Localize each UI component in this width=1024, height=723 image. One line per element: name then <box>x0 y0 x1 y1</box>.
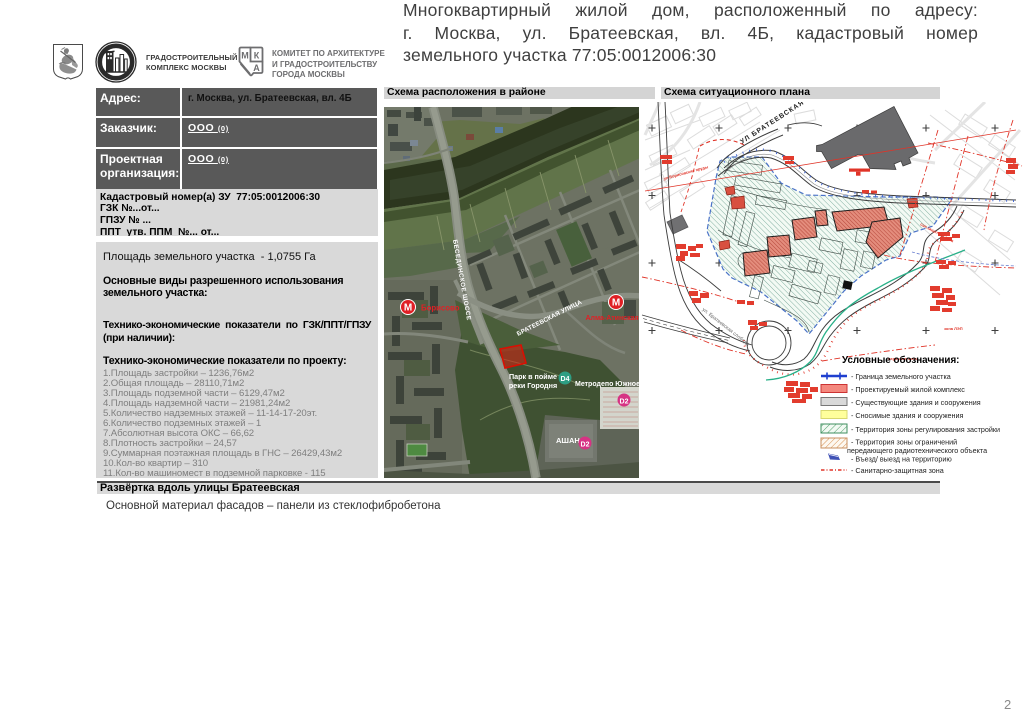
svg-text:Парк в пойме: Парк в пойме <box>509 372 557 381</box>
svg-text:М: М <box>404 303 412 314</box>
svg-text:- Сносимые здания и сооружения: - Сносимые здания и сооружения <box>851 411 964 420</box>
svg-text:Борисово: Борисово <box>421 304 460 313</box>
svg-text:К: К <box>254 51 260 61</box>
svg-text:зона ЛЭП: зона ЛЭП <box>944 326 963 331</box>
svg-text:Метродепо Южное: Метродепо Южное <box>575 381 639 388</box>
svg-text:А: А <box>253 63 260 73</box>
svg-text:D2: D2 <box>620 399 629 406</box>
svg-text:- Территория зоны регулировани: - Территория зоны регулирования застройк… <box>851 425 1000 434</box>
svg-text:- Санитарно-защитная зона: - Санитарно-защитная зона <box>851 466 944 475</box>
svg-text:АШАН: АШАН <box>556 436 580 445</box>
svg-text:- Проектируемый жилой комплекс: - Проектируемый жилой комплекс <box>851 385 965 394</box>
svg-text:D2: D2 <box>581 442 590 449</box>
svg-text:- Существующие здания и сооруж: - Существующие здания и сооружения <box>851 398 981 407</box>
svg-text:реки Городня: реки Городня <box>509 381 557 390</box>
svg-text:- Въезд/ выезд на территорию: - Въезд/ выезд на территорию <box>851 455 952 464</box>
svg-text:М: М <box>612 298 620 309</box>
svg-text:Условные обозначения:: Условные обозначения: <box>842 355 959 366</box>
svg-text:Алма-Атинская: Алма-Атинская <box>585 315 638 322</box>
svg-text:М: М <box>241 51 249 61</box>
svg-text:- Граница земельного участка: - Граница земельного участка <box>851 372 951 381</box>
svg-text:D4: D4 <box>561 376 570 383</box>
